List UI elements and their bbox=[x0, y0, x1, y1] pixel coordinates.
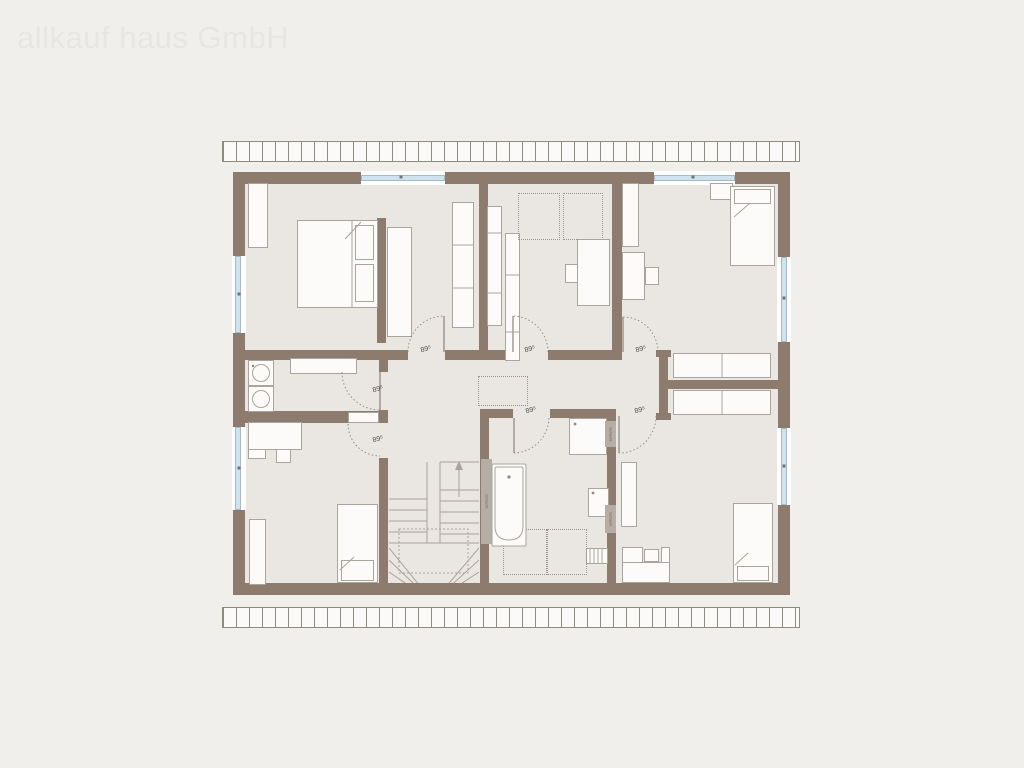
window-glass bbox=[781, 428, 787, 505]
door-leaf-open bbox=[348, 412, 379, 423]
counter bbox=[290, 358, 357, 374]
planned-furniture-dashed bbox=[503, 529, 547, 575]
closet bbox=[673, 390, 771, 415]
planned-furniture-dashed bbox=[518, 193, 560, 240]
roof-eaves-strip-top bbox=[222, 141, 800, 162]
dryer bbox=[248, 386, 274, 412]
closet bbox=[673, 353, 771, 378]
desk bbox=[622, 252, 645, 300]
shower bbox=[569, 418, 607, 455]
wardrobe bbox=[387, 227, 412, 337]
window-glass bbox=[235, 427, 241, 510]
wall-exterior-right bbox=[778, 172, 790, 257]
wall-exterior-left bbox=[233, 510, 245, 595]
wall-hall-west bbox=[379, 350, 388, 372]
wall-child1-child2 bbox=[612, 184, 622, 360]
chair bbox=[645, 267, 659, 285]
chair bbox=[644, 549, 659, 562]
shaft-label: Schacht bbox=[609, 427, 613, 441]
planned-sideboard-dashed bbox=[478, 376, 528, 406]
pillow bbox=[734, 189, 771, 204]
pillow bbox=[355, 264, 374, 302]
desk bbox=[622, 562, 670, 583]
chair bbox=[276, 449, 291, 463]
planned-furniture-dashed bbox=[563, 193, 603, 240]
shaft-label: Schacht bbox=[485, 494, 489, 508]
radiator bbox=[586, 548, 608, 564]
wardrobe bbox=[249, 519, 266, 585]
wall-exterior-right bbox=[778, 342, 790, 428]
desk bbox=[248, 422, 302, 450]
desk bbox=[661, 547, 670, 563]
wall-bed-headboard-divider bbox=[377, 218, 386, 343]
desk bbox=[622, 547, 643, 563]
wardrobe bbox=[248, 183, 268, 248]
wall-stub-cap bbox=[656, 413, 671, 420]
pillow bbox=[737, 566, 769, 581]
shaft-strip: Schacht bbox=[605, 505, 616, 533]
pillow bbox=[355, 225, 374, 260]
window-glass bbox=[781, 257, 787, 342]
wall-hall-west bbox=[379, 410, 388, 423]
shelf bbox=[505, 233, 520, 361]
shaft-strip: Schacht bbox=[481, 459, 492, 544]
washing-machine bbox=[248, 360, 274, 386]
desk bbox=[577, 239, 610, 306]
wardrobe bbox=[622, 183, 639, 247]
cabinet bbox=[452, 202, 474, 328]
roof-eaves-strip-bottom bbox=[222, 607, 800, 628]
chair bbox=[565, 264, 578, 283]
shelf bbox=[621, 462, 637, 527]
shaft-strip: Schacht bbox=[605, 421, 616, 447]
shaft-label: Schacht bbox=[609, 512, 613, 526]
wall-corridor-north bbox=[445, 350, 512, 360]
window-glass bbox=[235, 256, 241, 333]
wall-bath-north bbox=[480, 409, 513, 418]
wall-corridor-north bbox=[548, 350, 622, 360]
wall-bath-north bbox=[550, 409, 616, 418]
wall-stub-right bbox=[659, 350, 668, 420]
wall-exterior-right bbox=[778, 505, 790, 595]
wall-exterior-bottom bbox=[233, 583, 790, 595]
shelf bbox=[487, 206, 502, 326]
window-glass bbox=[654, 175, 735, 181]
pillow bbox=[341, 560, 374, 581]
wall-hall-west bbox=[379, 458, 388, 583]
wall-exterior-left bbox=[233, 172, 245, 256]
planned-furniture-dashed bbox=[547, 529, 587, 575]
wall-exterior-left bbox=[233, 333, 245, 427]
wall-closet-niche bbox=[668, 380, 778, 389]
floor-plan-page: allkauf haus GmbH bbox=[0, 0, 1024, 768]
desk bbox=[248, 449, 266, 459]
window-glass bbox=[361, 175, 445, 181]
company-watermark: allkauf haus GmbH bbox=[17, 20, 289, 56]
